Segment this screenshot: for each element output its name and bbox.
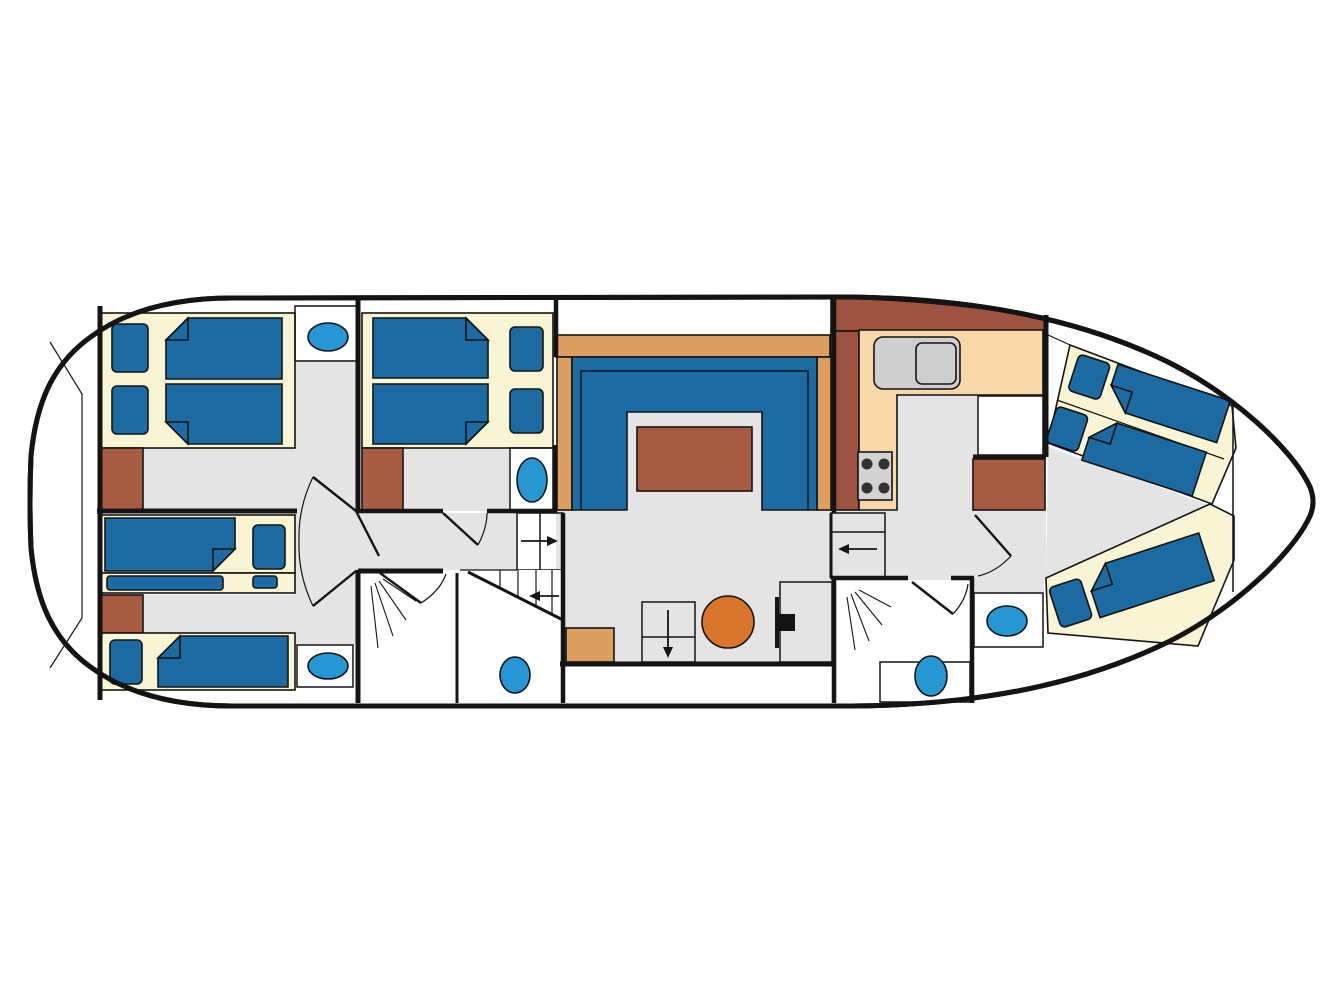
burner — [862, 459, 873, 470]
floorplan-canvas — [0, 0, 1339, 1004]
shower-room-fore — [836, 580, 970, 702]
burner — [879, 459, 890, 470]
corridor-floor — [358, 513, 517, 570]
round-table — [702, 596, 754, 648]
pillow — [510, 389, 543, 433]
cabin1-floor — [143, 448, 295, 511]
sink-bowl — [916, 343, 956, 384]
burner — [879, 483, 890, 494]
fore-passage-floor — [835, 508, 1046, 580]
washbasin — [308, 323, 348, 351]
toilet — [517, 458, 547, 502]
burner — [862, 483, 873, 494]
washbasin-room-lower — [974, 649, 1043, 689]
pillow — [112, 324, 148, 372]
trundle-pillow — [253, 576, 277, 588]
cabin3-floor — [143, 595, 295, 633]
pillow — [510, 327, 543, 371]
aft-corridor-junction-floor — [295, 360, 358, 645]
washbasin — [987, 606, 1027, 636]
pillow — [112, 386, 148, 434]
side-deck — [566, 666, 829, 702]
helm-seat — [779, 614, 795, 631]
trundle-mattress — [107, 576, 223, 590]
step-box — [566, 628, 614, 662]
galley-floor — [897, 395, 978, 510]
salon-table — [637, 427, 752, 491]
sofa-arm-right — [817, 357, 832, 510]
stove — [858, 452, 892, 500]
wardrobe — [100, 448, 143, 511]
sofa-backrest — [556, 335, 830, 357]
cabin2-floor — [403, 448, 510, 511]
wardrobe — [100, 595, 143, 633]
fore-passage-floor2 — [974, 578, 1044, 594]
toilet — [500, 657, 530, 693]
boat-floorplan-diagram — [0, 0, 1339, 1004]
galley-cabinet-brown — [973, 459, 1045, 510]
washbasin — [308, 653, 348, 679]
wardrobe — [362, 448, 403, 511]
shower-room — [362, 573, 455, 702]
toilet — [915, 656, 947, 696]
sofa-arm-left — [557, 357, 572, 510]
pillow — [110, 640, 142, 684]
helm-seat-post — [775, 597, 779, 648]
pillow — [253, 525, 285, 569]
